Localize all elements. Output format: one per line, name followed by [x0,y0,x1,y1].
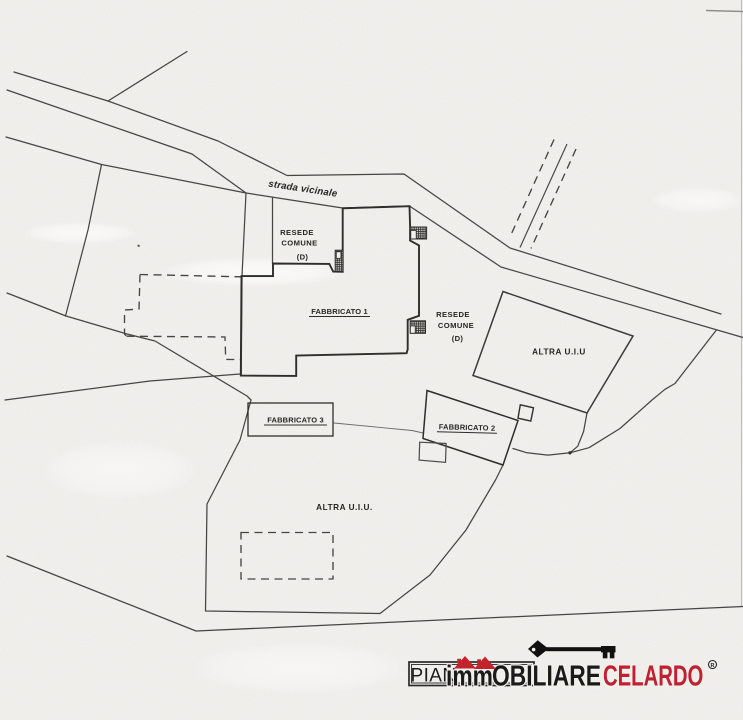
svg-text:ALTRA U.I.U: ALTRA U.I.U [532,348,586,357]
svg-text:RESEDE: RESEDE [436,310,470,319]
svg-text:FABBRICATO 2: FABBRICATO 2 [439,422,496,432]
svg-text:(D): (D) [297,253,309,262]
svg-text:COMUNE: COMUNE [438,321,474,330]
svg-text:FABBRICATO 1: FABBRICATO 1 [311,307,368,316]
svg-text:OBILIARE: OBILIARE [492,659,601,692]
svg-text:COMUNE: COMUNE [281,239,317,248]
svg-text:ALTRA U.I.U.: ALTRA U.I.U. [316,503,373,512]
svg-text:RESEDE: RESEDE [280,228,314,237]
svg-text:R: R [711,663,715,669]
svg-text:FABBRICATO 3: FABBRICATO 3 [267,416,324,425]
svg-text:(D): (D) [452,334,464,343]
svg-text:CELARDO: CELARDO [603,660,703,692]
